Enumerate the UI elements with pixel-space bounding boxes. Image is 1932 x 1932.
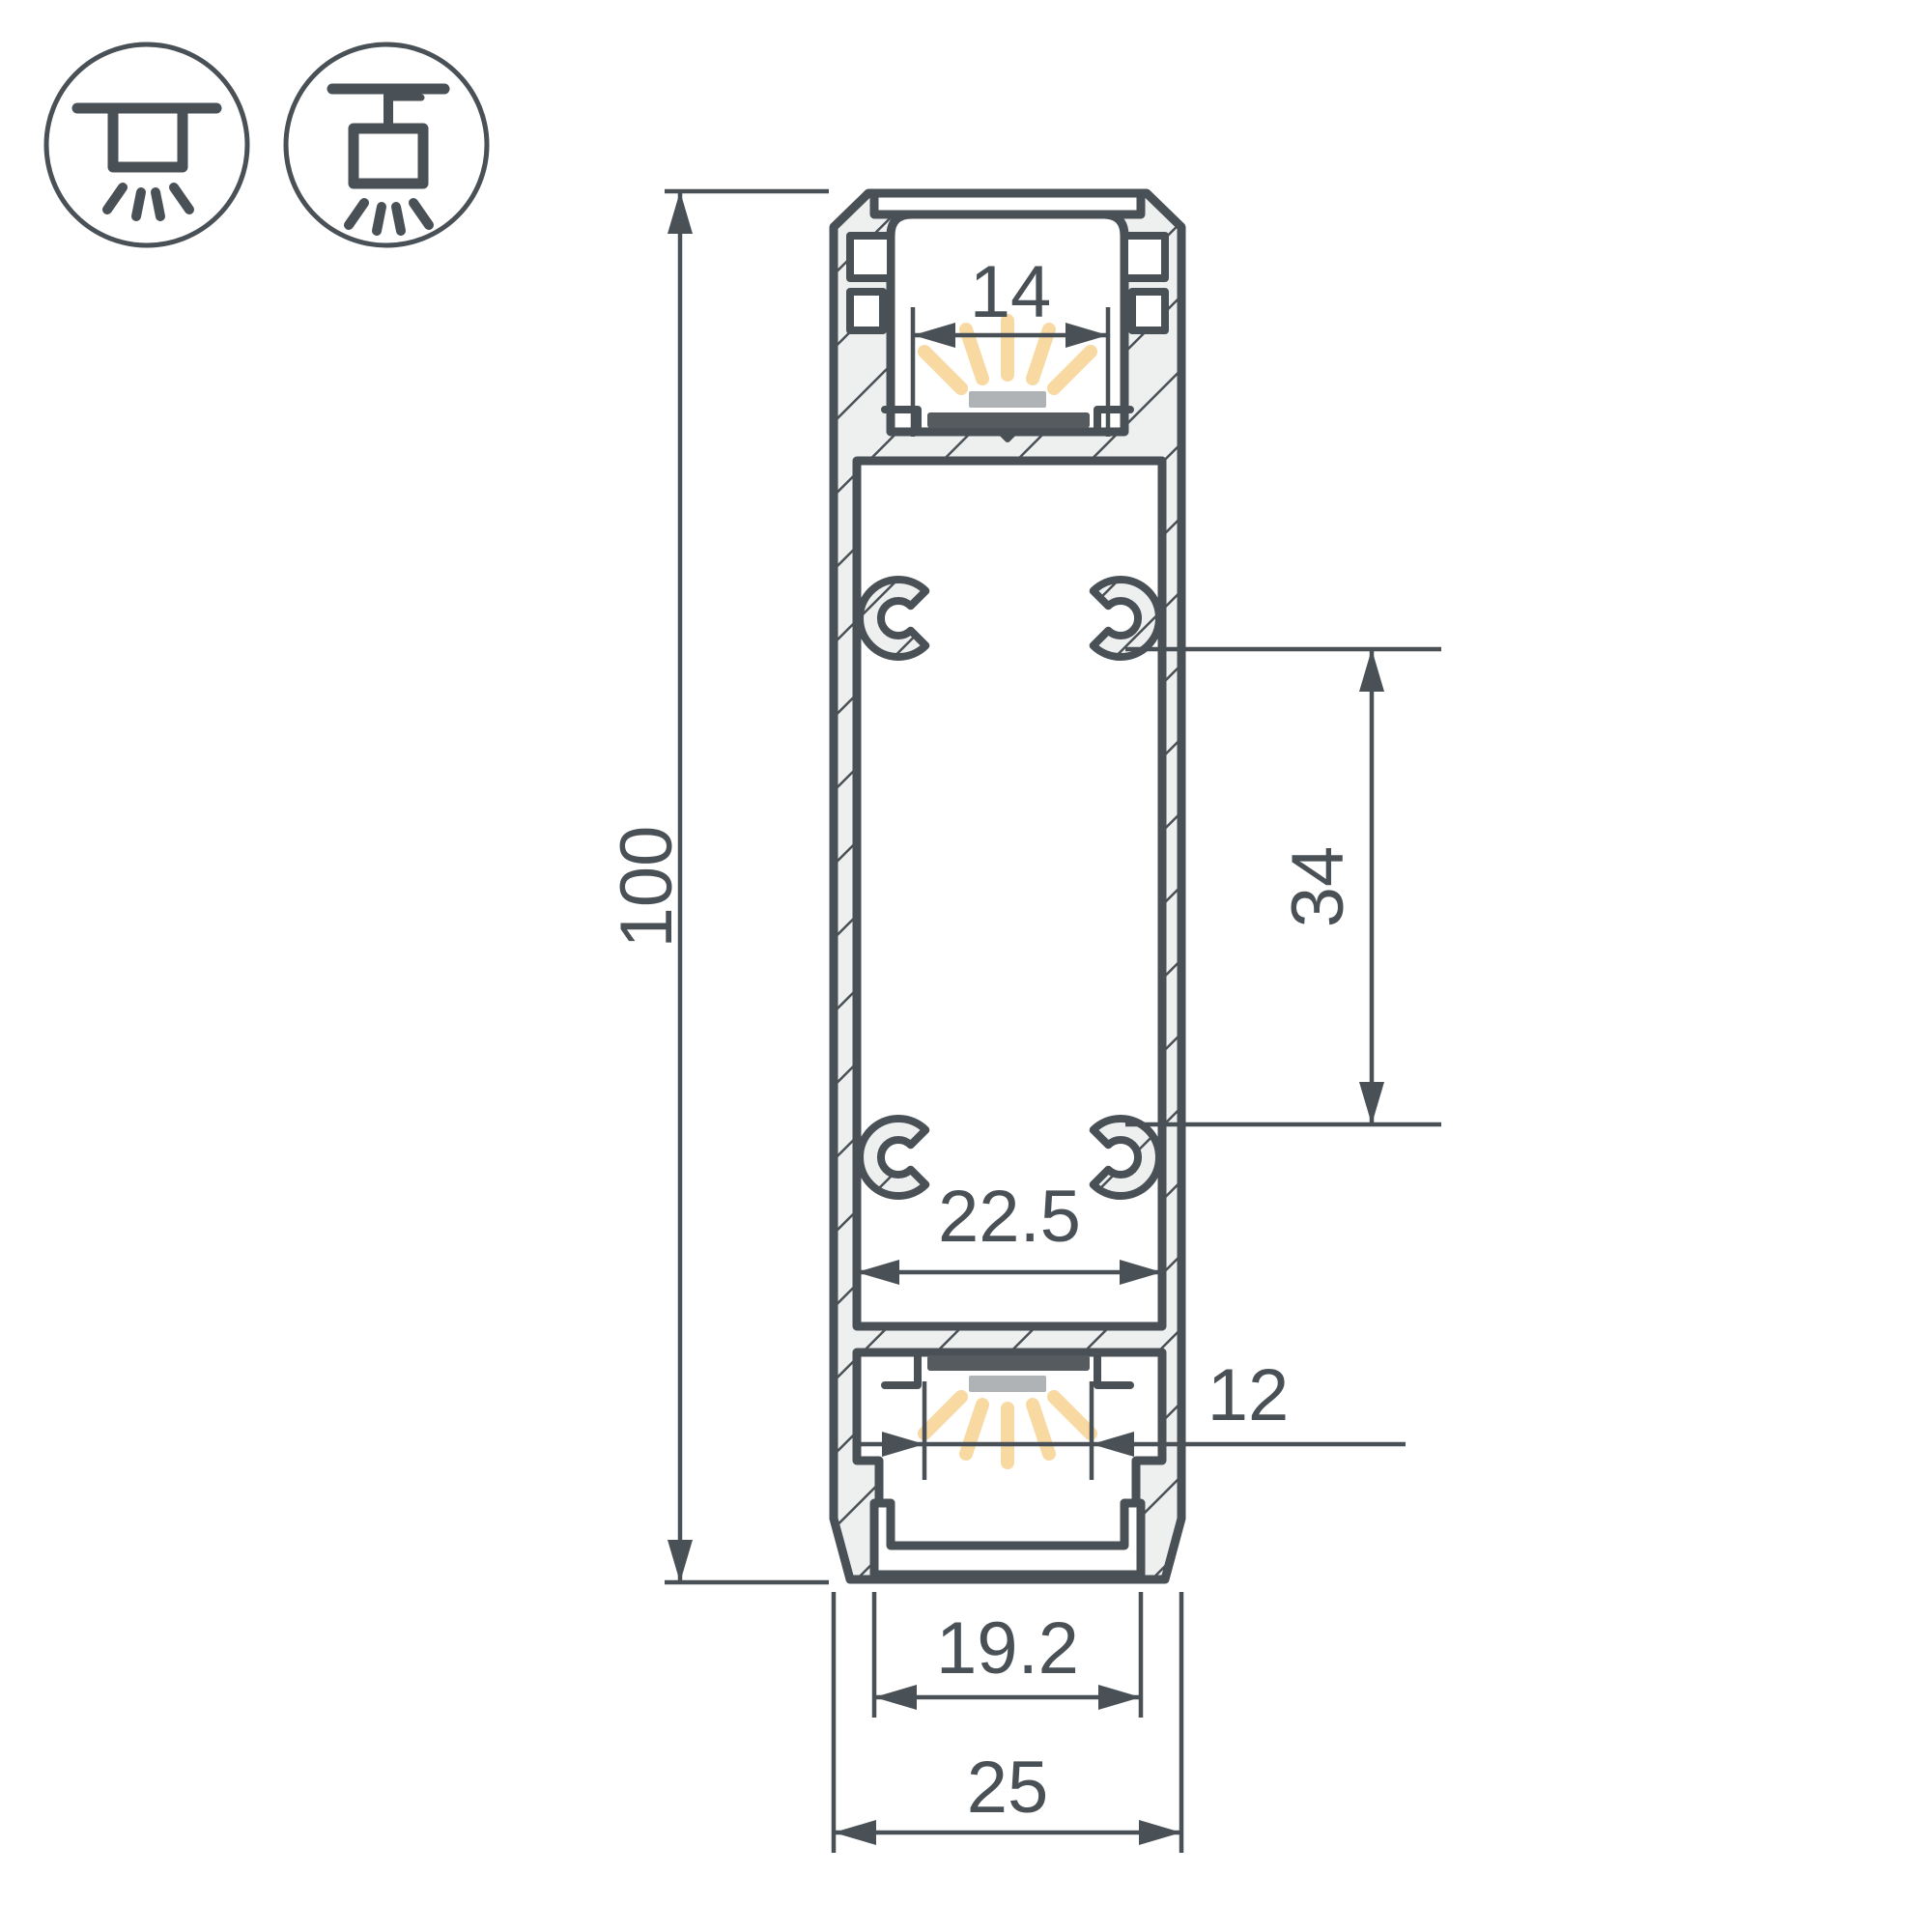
profile-cross-section	[834, 193, 1181, 1579]
dimension-overall-height: 100	[606, 191, 829, 1582]
dimension-label-12: 12	[1207, 1354, 1290, 1436]
dimension-label-22-5: 22.5	[938, 1176, 1081, 1258]
led-pcb	[927, 1355, 1090, 1371]
led-pcb	[927, 412, 1090, 428]
technical-drawing-page: 100 14 34 22.5	[0, 0, 1932, 1932]
dimension-label-25: 25	[967, 1747, 1049, 1829]
dimension-label-19-2: 19.2	[936, 1607, 1079, 1690]
dimension-label-14: 14	[970, 251, 1052, 333]
dimension-label-100: 100	[606, 826, 688, 949]
led-emitter	[969, 1376, 1046, 1392]
mount-icons	[46, 44, 487, 245]
pendant-mount-icon	[286, 44, 487, 245]
led-emitter	[969, 391, 1046, 408]
dimension-label-34: 34	[1277, 846, 1359, 928]
dimension-bottom-window: 19.2	[874, 1592, 1141, 1718]
recessed-mount-icon	[46, 44, 247, 245]
technical-drawing: 100 14 34 22.5	[0, 0, 1932, 1932]
